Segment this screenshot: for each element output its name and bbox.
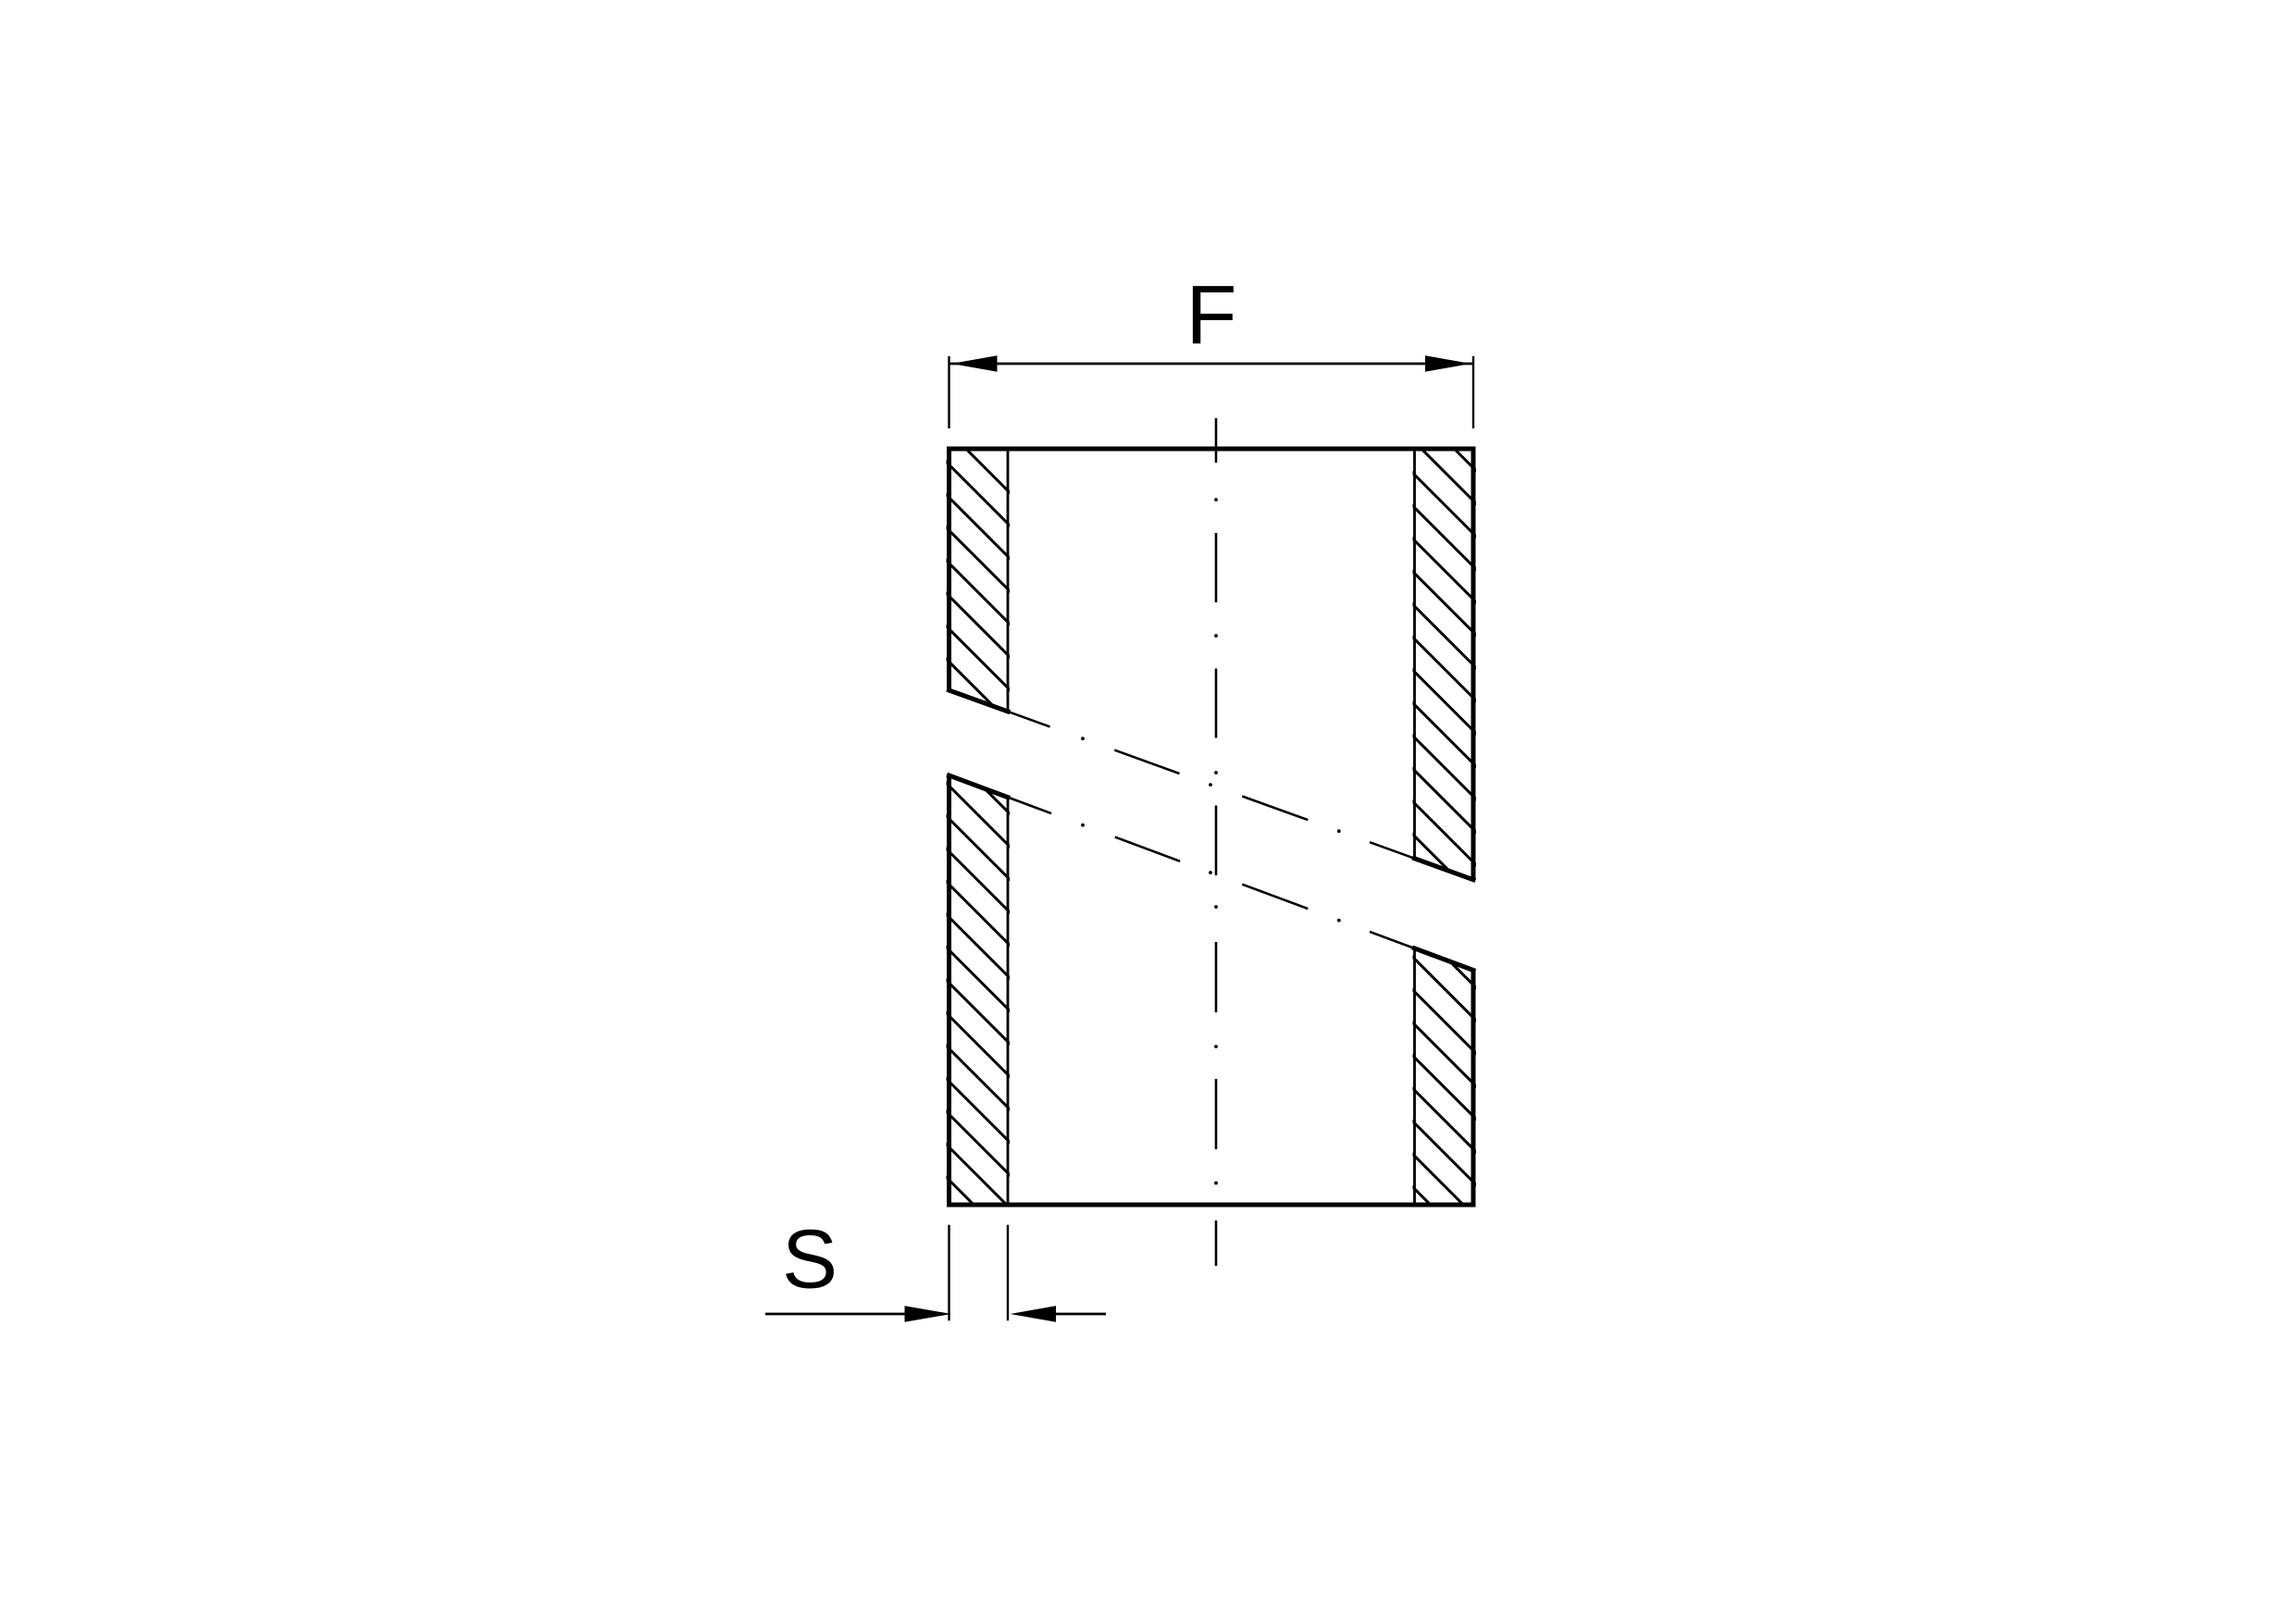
svg-text:F: F (1186, 269, 1237, 362)
svg-text:S: S (782, 1214, 838, 1307)
